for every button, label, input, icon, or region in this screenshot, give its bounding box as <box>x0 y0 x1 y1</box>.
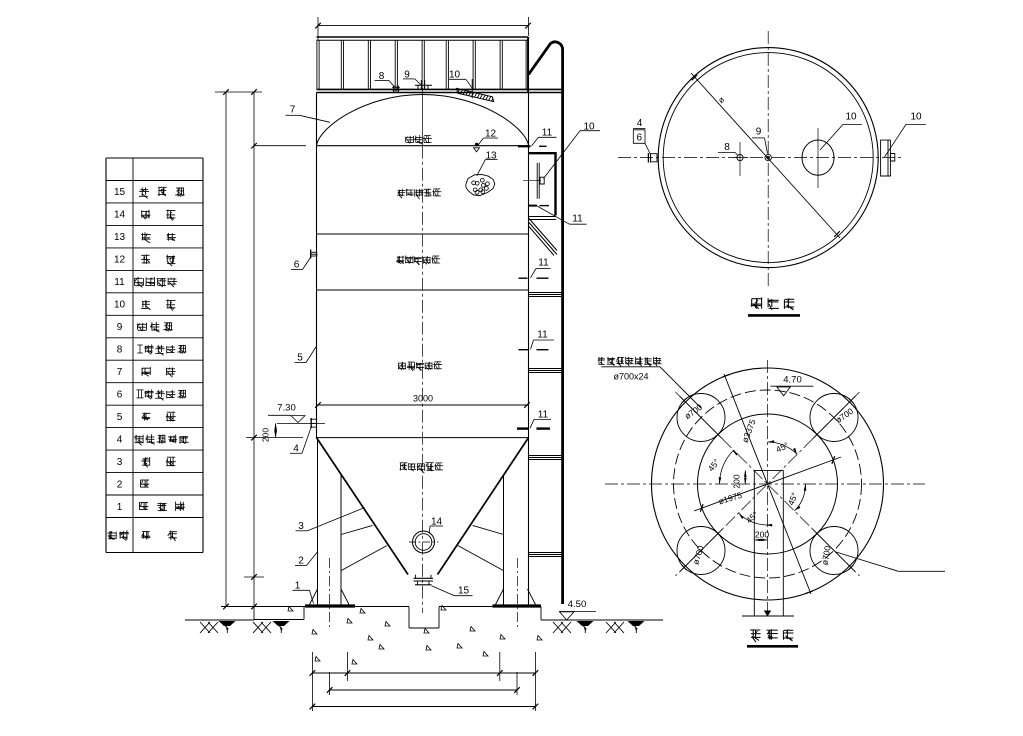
svg-text:9: 9 <box>756 126 762 137</box>
svg-text:11: 11 <box>537 329 548 340</box>
svg-text:6: 6 <box>637 132 643 143</box>
svg-text:200: 200 <box>261 428 271 442</box>
svg-text:8: 8 <box>117 345 123 356</box>
svg-text:7.30: 7.30 <box>277 403 296 414</box>
svg-text:8: 8 <box>724 142 730 153</box>
svg-text:4: 4 <box>117 434 123 445</box>
svg-text:10: 10 <box>114 300 126 311</box>
svg-text:5: 5 <box>117 412 123 423</box>
svg-text:10: 10 <box>449 70 461 81</box>
svg-text:200: 200 <box>732 474 742 488</box>
svg-text:3000: 3000 <box>413 394 433 404</box>
svg-text:200: 200 <box>755 530 769 540</box>
svg-text:2: 2 <box>117 479 123 490</box>
svg-text:10: 10 <box>845 111 857 122</box>
svg-text:7: 7 <box>290 105 296 116</box>
svg-text:15: 15 <box>114 187 126 198</box>
svg-text:12: 12 <box>114 255 126 266</box>
svg-text:6: 6 <box>117 389 123 400</box>
svg-text:4.50: 4.50 <box>568 599 587 610</box>
svg-text:6: 6 <box>294 259 300 270</box>
svg-text:11: 11 <box>538 410 549 421</box>
svg-text:2: 2 <box>298 556 304 567</box>
svg-text:10: 10 <box>910 111 922 122</box>
svg-text:13: 13 <box>114 232 126 243</box>
svg-text:5: 5 <box>297 353 303 364</box>
svg-text:11: 11 <box>572 214 583 225</box>
svg-text:4.70: 4.70 <box>783 375 802 386</box>
svg-text:11: 11 <box>542 127 553 138</box>
svg-text:14: 14 <box>114 210 126 221</box>
svg-text:3: 3 <box>117 457 123 468</box>
svg-text:15: 15 <box>458 586 470 597</box>
svg-text:11: 11 <box>538 258 549 269</box>
svg-text:1: 1 <box>117 502 123 513</box>
svg-text:11: 11 <box>114 277 125 288</box>
svg-text:ø700x24: ø700x24 <box>613 372 648 382</box>
svg-text:1: 1 <box>295 581 301 592</box>
svg-text:4: 4 <box>293 444 299 455</box>
svg-text:3: 3 <box>298 521 304 532</box>
svg-text:4: 4 <box>637 118 643 129</box>
svg-text:9: 9 <box>117 322 123 333</box>
svg-text:7: 7 <box>117 367 123 378</box>
